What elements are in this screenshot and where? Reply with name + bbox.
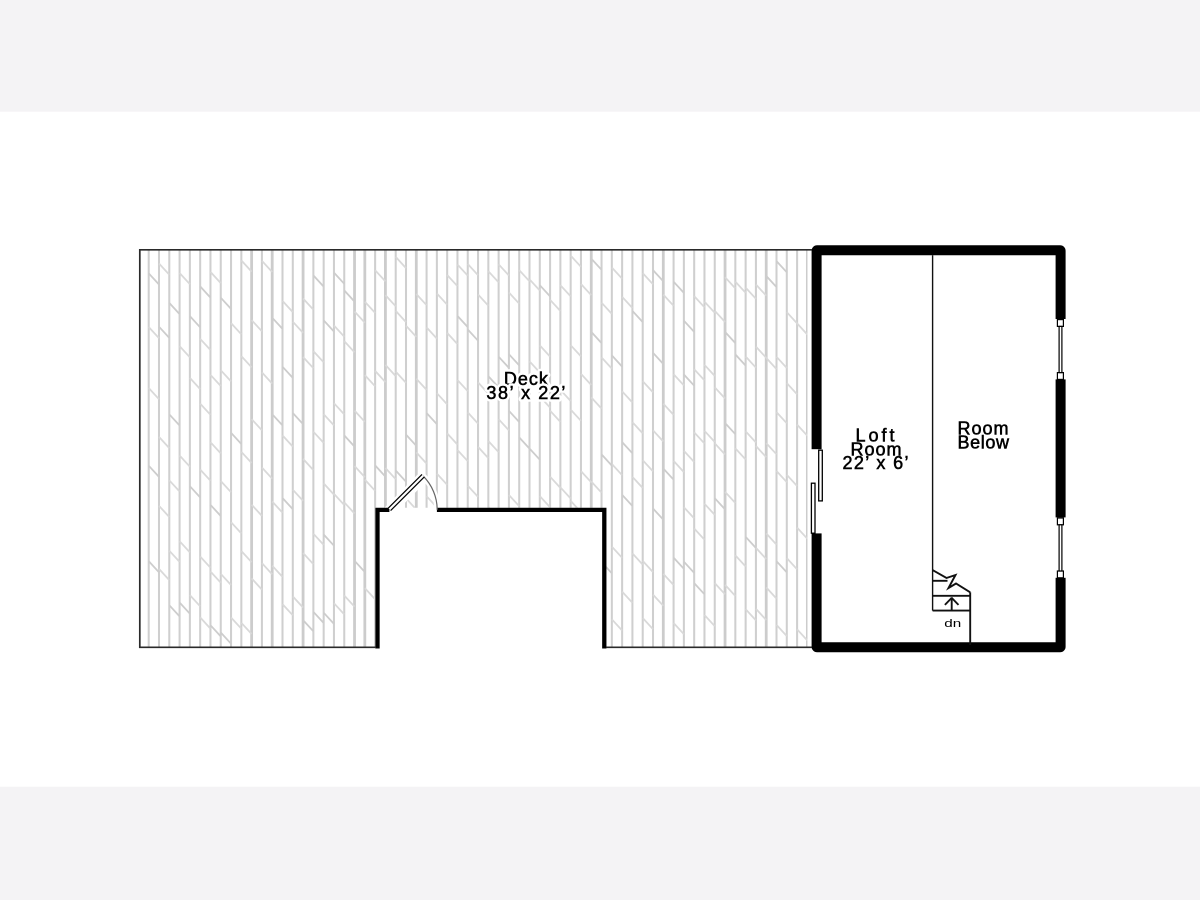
- svg-text:Below: Below: [957, 433, 1010, 453]
- svg-text:38’ x 22’: 38’ x 22’: [486, 383, 565, 403]
- svg-text:22’ x 6’: 22’ x 6’: [843, 453, 909, 473]
- svg-text:dn: dn: [944, 617, 961, 629]
